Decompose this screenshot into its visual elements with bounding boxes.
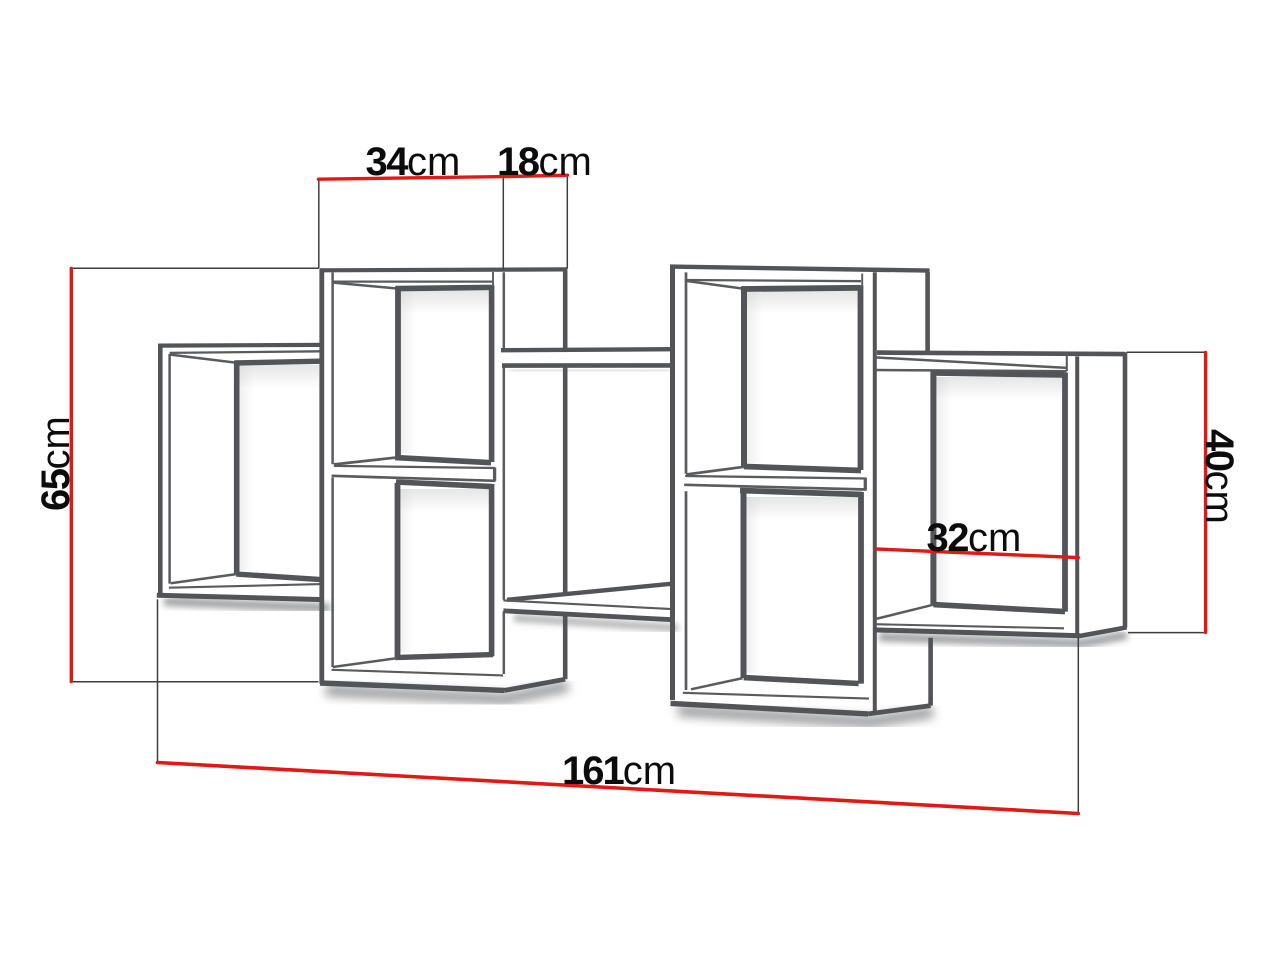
svg-text:18cm: 18cm: [497, 140, 592, 184]
svg-text:32cm: 32cm: [927, 516, 1022, 560]
svg-text:65cm: 65cm: [34, 416, 78, 511]
svg-text:34cm: 34cm: [366, 140, 461, 184]
svg-text:161cm: 161cm: [562, 749, 676, 793]
svg-text:40cm: 40cm: [1197, 429, 1241, 524]
